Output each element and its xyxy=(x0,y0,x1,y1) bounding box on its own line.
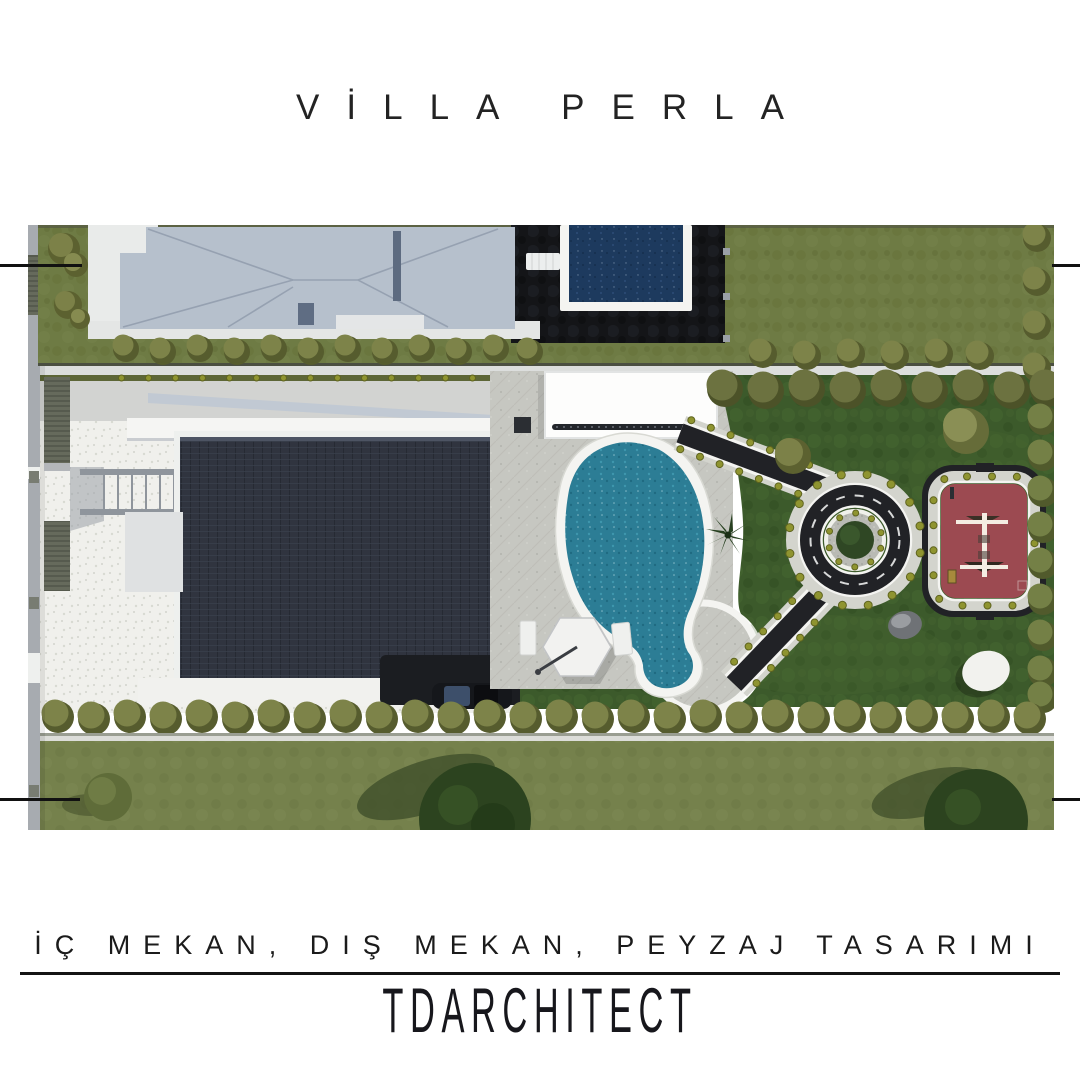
footer-tagline: İÇ MEKAN, DIŞ MEKAN, PEYZAJ TASARIMI xyxy=(20,930,1060,975)
registration-tick-top-left xyxy=(0,264,82,267)
main-villa-zone xyxy=(38,418,525,713)
neighbor-roof xyxy=(120,227,515,329)
registration-tick-bottom-left xyxy=(0,798,80,801)
site-plan-svg xyxy=(28,225,1054,830)
skylight-box xyxy=(514,417,531,433)
site-plan-render xyxy=(28,225,1054,830)
lawn-bush xyxy=(943,408,989,454)
neighbor-pool xyxy=(560,225,692,311)
brand-logo: TDARCHITECT xyxy=(97,975,983,1047)
footer: İÇ MEKAN, DIŞ MEKAN, PEYZAJ TASARIMI xyxy=(0,930,1080,975)
lawn-tree xyxy=(775,438,811,474)
neighbor-chimney xyxy=(393,231,401,301)
side-gate xyxy=(28,653,40,683)
playground xyxy=(927,463,1041,620)
main-villa-roof xyxy=(177,434,509,684)
roundabout xyxy=(793,478,917,602)
registration-tick-bottom-right xyxy=(1052,798,1080,801)
neighbor-lounger xyxy=(526,253,560,270)
page-title: VİLLA PERLA xyxy=(0,88,1080,128)
poster-canvas: VİLLA PERLA xyxy=(0,0,1080,1080)
registration-tick-top-right xyxy=(1052,264,1080,267)
bottom-field xyxy=(28,740,1054,830)
